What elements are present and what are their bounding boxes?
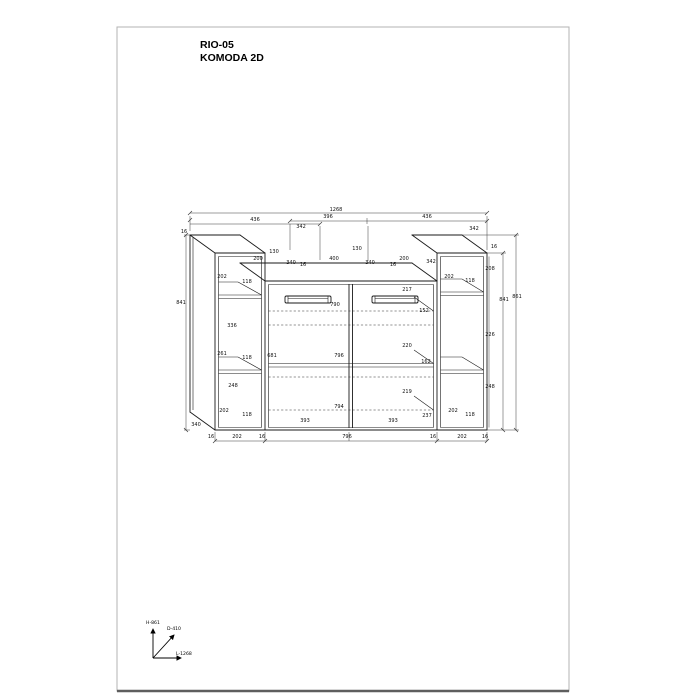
dimension-label: 794 xyxy=(334,404,344,410)
height-axis-label: H-861 xyxy=(146,620,160,626)
dimension-label: 208 xyxy=(485,266,495,272)
dimension-label: 342 xyxy=(296,224,306,230)
dimension-label: 118 xyxy=(465,412,475,418)
dimension-label: 162 xyxy=(421,359,431,365)
dimension-label: 202 xyxy=(217,274,227,280)
dimension-label: 248 xyxy=(228,383,238,389)
dimension-label: 217 xyxy=(402,287,412,293)
dimension-label: 200 xyxy=(253,256,263,262)
dimension-label: 340 xyxy=(191,422,201,428)
dimension-label: 16 xyxy=(491,244,497,250)
dimension-label: 861 xyxy=(512,294,522,300)
dimension-label: 393 xyxy=(388,418,398,424)
dimension-label: 340 xyxy=(365,260,375,266)
dimension-label: 130 xyxy=(269,249,279,255)
dimension-label: 400 xyxy=(329,256,339,262)
dimension-label: 436 xyxy=(422,214,432,220)
dimension-label: 202 xyxy=(444,274,454,280)
dimension-label: 393 xyxy=(300,418,310,424)
dimension-label: 796 xyxy=(334,353,344,359)
dimension-label: 261 xyxy=(217,351,227,357)
page-sheet xyxy=(117,27,569,691)
dimension-label: 436 xyxy=(250,217,260,223)
drawing-page: RIO-05 KOMODA 2D xyxy=(0,0,700,700)
dimension-label: 681 xyxy=(267,353,277,359)
dimension-label: 202 xyxy=(448,408,458,414)
drawing-title-type: KOMODA 2D xyxy=(200,52,264,64)
dimension-label: 16 xyxy=(482,434,488,440)
dimension-label: 16 xyxy=(181,229,187,235)
dimension-label: 130 xyxy=(352,246,362,252)
dimension-label: 16 xyxy=(390,262,396,268)
dimension-label: 202 xyxy=(457,434,467,440)
dimension-label: 841 xyxy=(499,297,509,303)
dimension-label: 152 xyxy=(419,308,429,314)
dimension-label: 16 xyxy=(208,434,214,440)
dimension-label: 342 xyxy=(426,259,436,265)
dimension-label: 16 xyxy=(300,262,306,268)
dimension-label: 1268 xyxy=(330,207,343,213)
dimension-label: 796 xyxy=(342,434,352,440)
dimension-label: 118 xyxy=(242,412,252,418)
dimension-label: 16 xyxy=(259,434,265,440)
dimension-label: 248 xyxy=(485,384,495,390)
dimension-label: 118 xyxy=(242,279,252,285)
dimension-label: 336 xyxy=(227,323,237,329)
dimension-label: 226 xyxy=(485,332,495,338)
dimension-label: 16 xyxy=(430,434,436,440)
technical-drawing: RIO-05 KOMODA 2D xyxy=(0,0,700,700)
dimension-label: 118 xyxy=(242,355,252,361)
dimension-label: 340 xyxy=(286,260,296,266)
dimension-label: 118 xyxy=(465,278,475,284)
dimension-label: 396 xyxy=(323,214,333,220)
dimension-label: 200 xyxy=(399,256,409,262)
depth-axis-label: D-410 xyxy=(167,626,181,632)
dimension-label: 790 xyxy=(330,302,340,308)
dimension-label: 841 xyxy=(176,300,186,306)
dimension-label: 202 xyxy=(232,434,242,440)
dimension-label: 220 xyxy=(402,343,412,349)
drawing-title-model: RIO-05 xyxy=(200,39,234,51)
dimension-label: 237 xyxy=(422,413,432,419)
dimension-label: 342 xyxy=(469,226,479,232)
length-axis-label: L-1268 xyxy=(176,651,192,657)
dimension-label: 219 xyxy=(402,389,412,395)
dimension-label: 202 xyxy=(219,408,229,414)
